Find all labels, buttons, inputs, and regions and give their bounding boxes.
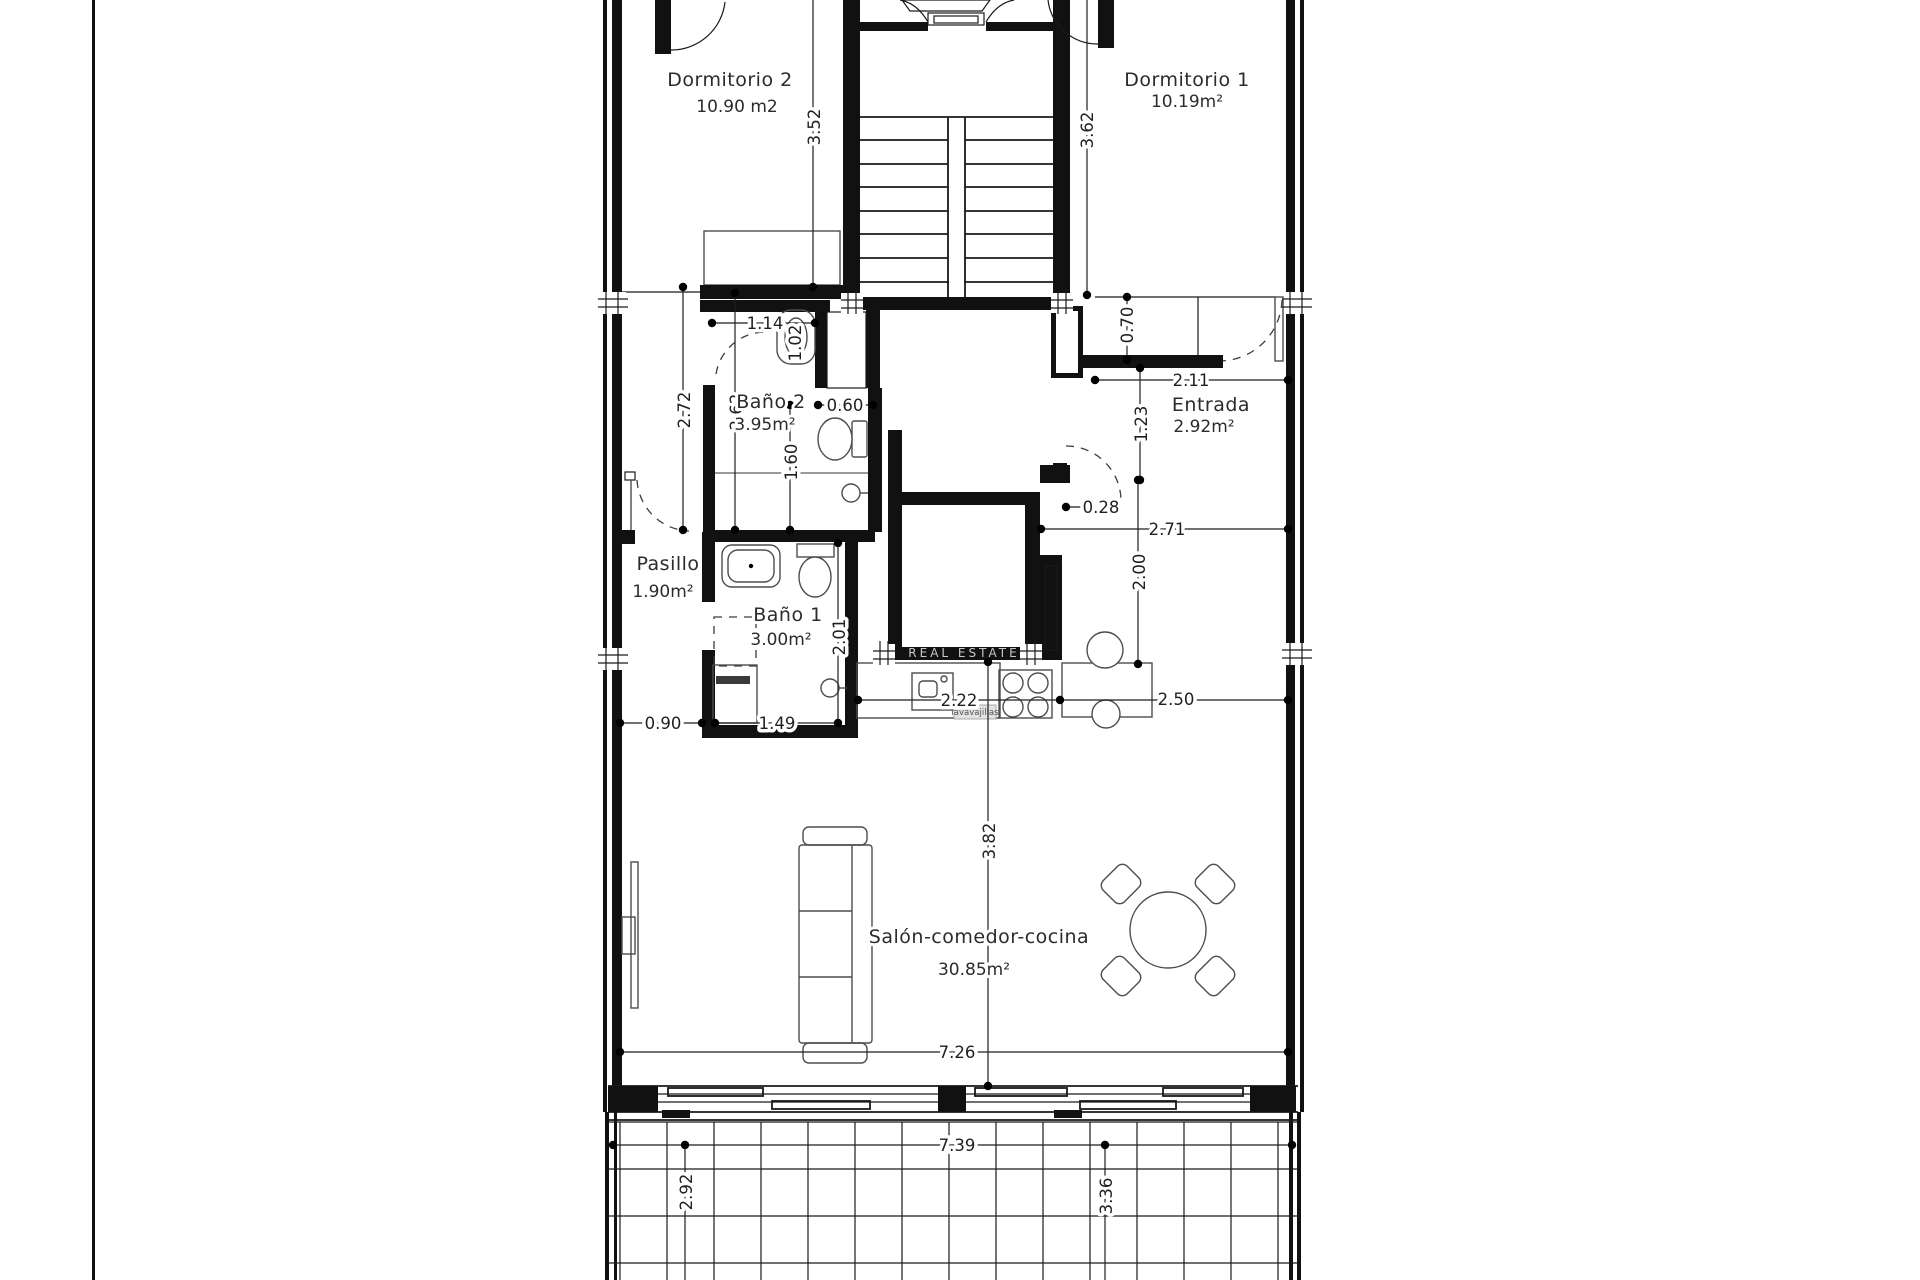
faucet (941, 676, 947, 682)
toilet (799, 557, 831, 597)
dim-salon-height: 3.82 (980, 823, 999, 860)
window-icon (841, 290, 863, 314)
chair (1192, 953, 1237, 998)
dim-bano1-width: 1.49 (759, 714, 796, 733)
watermark-text: REAL ESTATE (908, 646, 1019, 660)
window-icon (873, 641, 895, 665)
drain (821, 679, 839, 697)
dim-terrace-width: 7.39 (939, 1136, 976, 1155)
room-label-entrada: Entrada (1172, 394, 1250, 416)
threshold (662, 1110, 690, 1118)
dim-hall-width: 2.71 (1149, 520, 1186, 539)
window-icon (1020, 641, 1042, 665)
dimension-texts: 3.52 3.62 1.14 1.02 2.72 2.62 0.60 1.60 … (645, 109, 1210, 1215)
sofa (799, 827, 872, 1063)
stair-lobby (902, 0, 990, 11)
floor-plan-page: REAL ESTATE lavavajillas (0, 0, 1920, 1280)
round-fixture (1092, 700, 1120, 728)
door-jamb (655, 0, 671, 54)
room-label-pasillo: Pasillo (636, 553, 699, 575)
shower-tray (713, 665, 757, 723)
room-area-salon: 30.85m² (938, 960, 1010, 980)
dim-bano2-lower-height: 1.60 (782, 444, 801, 481)
pasillo-structure (617, 472, 689, 544)
door-swing-arc (671, 2, 725, 50)
dim-dorm1-height: 3.62 (1078, 112, 1097, 149)
shaft-structure: REAL ESTATE (888, 430, 1070, 660)
entrance-door-swing-arc (1218, 300, 1282, 361)
room-area-bano1: 3.00m² (750, 630, 811, 650)
sliding-panel (1163, 1088, 1243, 1096)
dim-dorm2-height: 3.52 (805, 109, 824, 146)
dim-entrada-width: 2.11 (1173, 371, 1210, 390)
room-area-dormitorio2: 10.90 m2 (696, 97, 777, 117)
dim-counter-left-width: 2.22 (941, 691, 978, 710)
hob (999, 670, 1052, 718)
bidet (842, 484, 860, 502)
dim-terrace-depth: 3.36 (1097, 1178, 1116, 1215)
room-area-dormitorio1: 10.19m² (1151, 92, 1223, 112)
hall-door-swing-arc (1066, 446, 1121, 501)
threshold (1054, 1110, 1082, 1118)
dim-bano1-left-offset: 0.90 (645, 714, 682, 733)
room-area-bano2: 3.95m² (734, 415, 795, 435)
dim-bano1-height: 2.01 (830, 619, 849, 656)
window-icon (598, 646, 628, 672)
window-icon (1051, 290, 1073, 314)
dormitorio1-structure (1048, 0, 1276, 378)
dim-wc-niche-width: 0.60 (827, 396, 864, 415)
dim-pasillo-height: 2.72 (675, 392, 694, 429)
shower-screen (716, 676, 750, 684)
room-area-entrada: 2.92m² (1173, 417, 1234, 437)
page-border-left (92, 0, 95, 1280)
dim-hall-top-width: 1.14 (747, 314, 784, 333)
dim-wall-offset: 0.28 (1083, 498, 1120, 517)
staircase (843, 0, 1070, 310)
window-wall (608, 1086, 1298, 1118)
toilet (818, 418, 852, 460)
wardrobe (704, 231, 840, 285)
dim-entrada-door-height: 1.23 (1132, 406, 1151, 443)
dim-terrace-left-depth: 2.92 (677, 1174, 696, 1211)
sliding-panel (668, 1088, 763, 1096)
toilet-tank (797, 544, 834, 557)
room-label-bano2: Baño 2 (736, 391, 805, 413)
dim-counter-right-width: 2.50 (1158, 690, 1195, 709)
dormitorio2-structure (622, 0, 843, 299)
chair (1098, 953, 1143, 998)
round-fixture (1087, 632, 1123, 668)
window-icon (1282, 290, 1312, 316)
toilet-tank (852, 421, 867, 457)
dim-salon-width: 7.26 (939, 1043, 976, 1062)
floor-plan-drawing: REAL ESTATE lavavajillas (0, 0, 1920, 1280)
room-label-dormitorio2: Dormitorio 2 (667, 69, 792, 91)
round-table (1130, 892, 1206, 968)
door-swing-arc (637, 480, 689, 531)
door-swing-arc (716, 332, 766, 374)
door-jamb (1098, 0, 1114, 48)
window-icon (598, 290, 628, 316)
chair (1192, 861, 1237, 906)
dim-niche-depth: 0.70 (1118, 307, 1137, 344)
room-area-pasillo: 1.90m² (632, 582, 693, 602)
dim-kitchen-drop: 2.00 (1130, 554, 1149, 591)
room-label-dormitorio1: Dormitorio 1 (1124, 69, 1249, 91)
room-label-salon: Salón-comedor-cocina (869, 926, 1089, 948)
dining-set (1098, 861, 1237, 998)
chair (1098, 861, 1143, 906)
room-label-bano1: Baño 1 (753, 604, 822, 626)
dim-top-door-width: 1.02 (786, 325, 805, 362)
window-icon (1282, 641, 1312, 667)
